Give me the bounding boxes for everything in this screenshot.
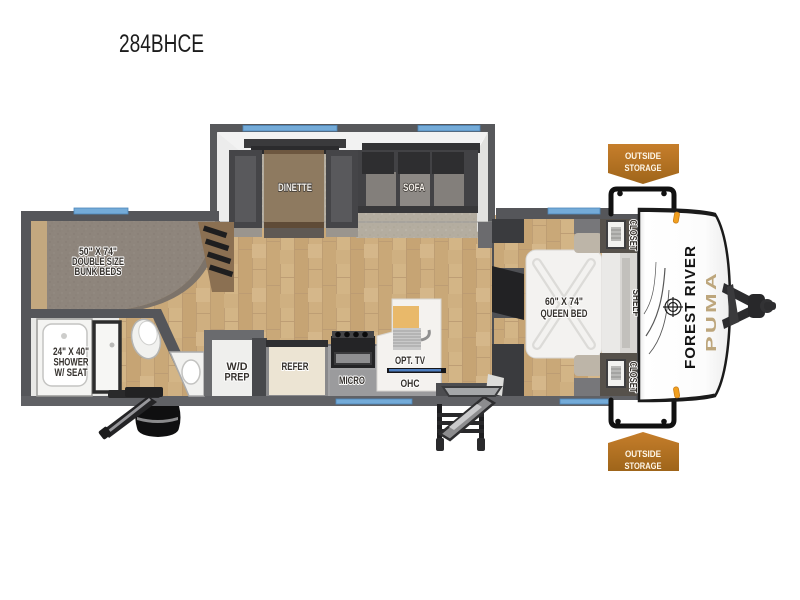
svg-text:DINETTE: DINETTE bbox=[278, 182, 312, 194]
svg-text:MICRO: MICRO bbox=[339, 375, 365, 387]
svg-text:PREP: PREP bbox=[225, 372, 250, 384]
svg-text:REFER: REFER bbox=[282, 361, 309, 373]
svg-text:STORAGE: STORAGE bbox=[625, 163, 662, 174]
svg-text:OUTSIDE: OUTSIDE bbox=[625, 449, 661, 460]
svg-text:CLOSET: CLOSET bbox=[627, 220, 638, 251]
svg-text:CLOSET: CLOSET bbox=[627, 362, 638, 393]
svg-text:STORAGE: STORAGE bbox=[625, 461, 662, 472]
svg-text:PUMA: PUMA bbox=[704, 270, 720, 352]
svg-text:BUNK BEDS: BUNK BEDS bbox=[75, 266, 122, 278]
svg-text:OPT. TV: OPT. TV bbox=[395, 355, 425, 367]
svg-text:OHC: OHC bbox=[401, 378, 420, 390]
svg-text:OUTSIDE: OUTSIDE bbox=[625, 151, 661, 162]
svg-text:QUEEN BED: QUEEN BED bbox=[541, 308, 588, 320]
svg-text:284BHCE: 284BHCE bbox=[119, 30, 204, 58]
svg-text:SOFA: SOFA bbox=[403, 182, 425, 194]
svg-text:FOREST RIVER: FOREST RIVER bbox=[682, 245, 699, 369]
svg-text:60" X 74": 60" X 74" bbox=[545, 296, 583, 308]
svg-text:W/ SEAT: W/ SEAT bbox=[55, 367, 88, 379]
